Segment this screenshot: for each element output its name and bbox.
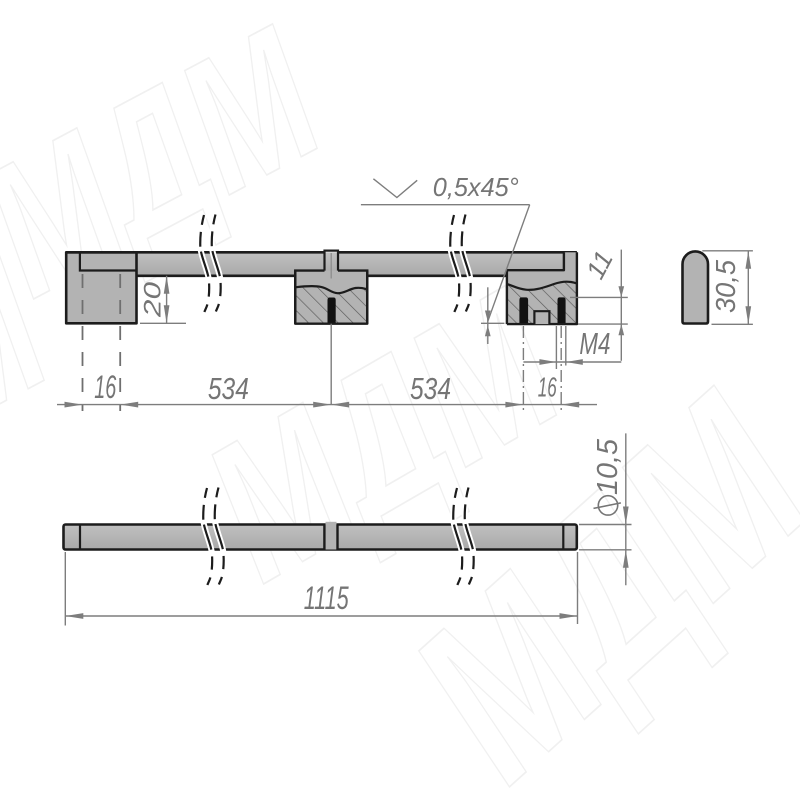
svg-text:1115: 1115	[304, 580, 349, 616]
svg-text:0,5x45°: 0,5x45°	[433, 172, 519, 202]
svg-text:16: 16	[94, 369, 116, 405]
svg-text:M4: M4	[579, 326, 610, 361]
svg-text:16: 16	[538, 372, 557, 403]
svg-text:534: 534	[208, 371, 249, 406]
svg-text:10,5: 10,5	[592, 438, 624, 495]
svg-text:30,5: 30,5	[710, 260, 741, 313]
svg-text:534: 534	[410, 371, 451, 406]
svg-text:20: 20	[140, 281, 167, 318]
